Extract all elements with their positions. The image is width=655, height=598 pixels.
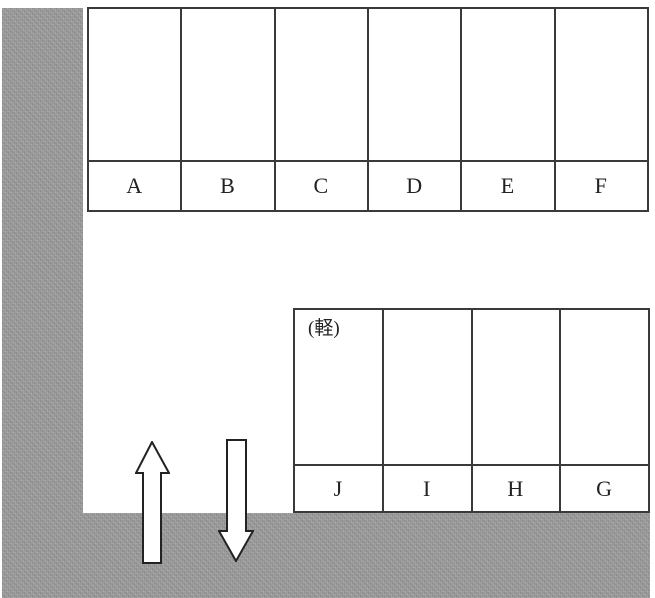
stall-h-label: H <box>473 464 560 511</box>
stall-a-label: A <box>89 160 180 210</box>
stall-c: C <box>274 9 367 210</box>
stall-e-label: E <box>462 160 553 210</box>
stall-i-bay <box>384 310 471 464</box>
down-arrow-icon <box>218 439 254 562</box>
stall-e: E <box>460 9 553 210</box>
stall-h-bay <box>473 310 560 464</box>
stall-g-label: G <box>561 464 648 511</box>
stall-d-label: D <box>369 160 460 210</box>
parking-row-g-j: (軽) J I H G <box>293 308 650 513</box>
stall-a-bay <box>89 9 180 160</box>
stall-f-label: F <box>556 160 647 210</box>
stall-d-bay <box>369 9 460 160</box>
up-arrow-icon <box>135 441 170 564</box>
stall-f: F <box>554 9 647 210</box>
stall-b-bay <box>182 9 273 160</box>
stall-e-bay <box>462 9 553 160</box>
stall-b-label: B <box>182 160 273 210</box>
stall-j-bay: (軽) <box>295 310 382 464</box>
parking-row-a-f: A B C D E F <box>87 7 649 212</box>
parking-lot-diagram: A B C D E F (軽) J I <box>0 0 655 598</box>
stall-i: I <box>382 310 471 511</box>
stall-c-label: C <box>276 160 367 210</box>
stall-g-bay <box>561 310 648 464</box>
driveway-bottom <box>2 513 650 598</box>
stall-i-label: I <box>384 464 471 511</box>
stall-c-bay <box>276 9 367 160</box>
stall-j-label: J <box>295 464 382 511</box>
kei-car-note: (軽) <box>308 318 340 339</box>
stall-a: A <box>89 9 180 210</box>
stall-f-bay <box>556 9 647 160</box>
stall-b: B <box>180 9 273 210</box>
stall-h: H <box>471 310 560 511</box>
stall-g: G <box>559 310 648 511</box>
driveway-left <box>2 8 83 598</box>
stall-d: D <box>367 9 460 210</box>
stall-j: (軽) J <box>295 310 382 511</box>
